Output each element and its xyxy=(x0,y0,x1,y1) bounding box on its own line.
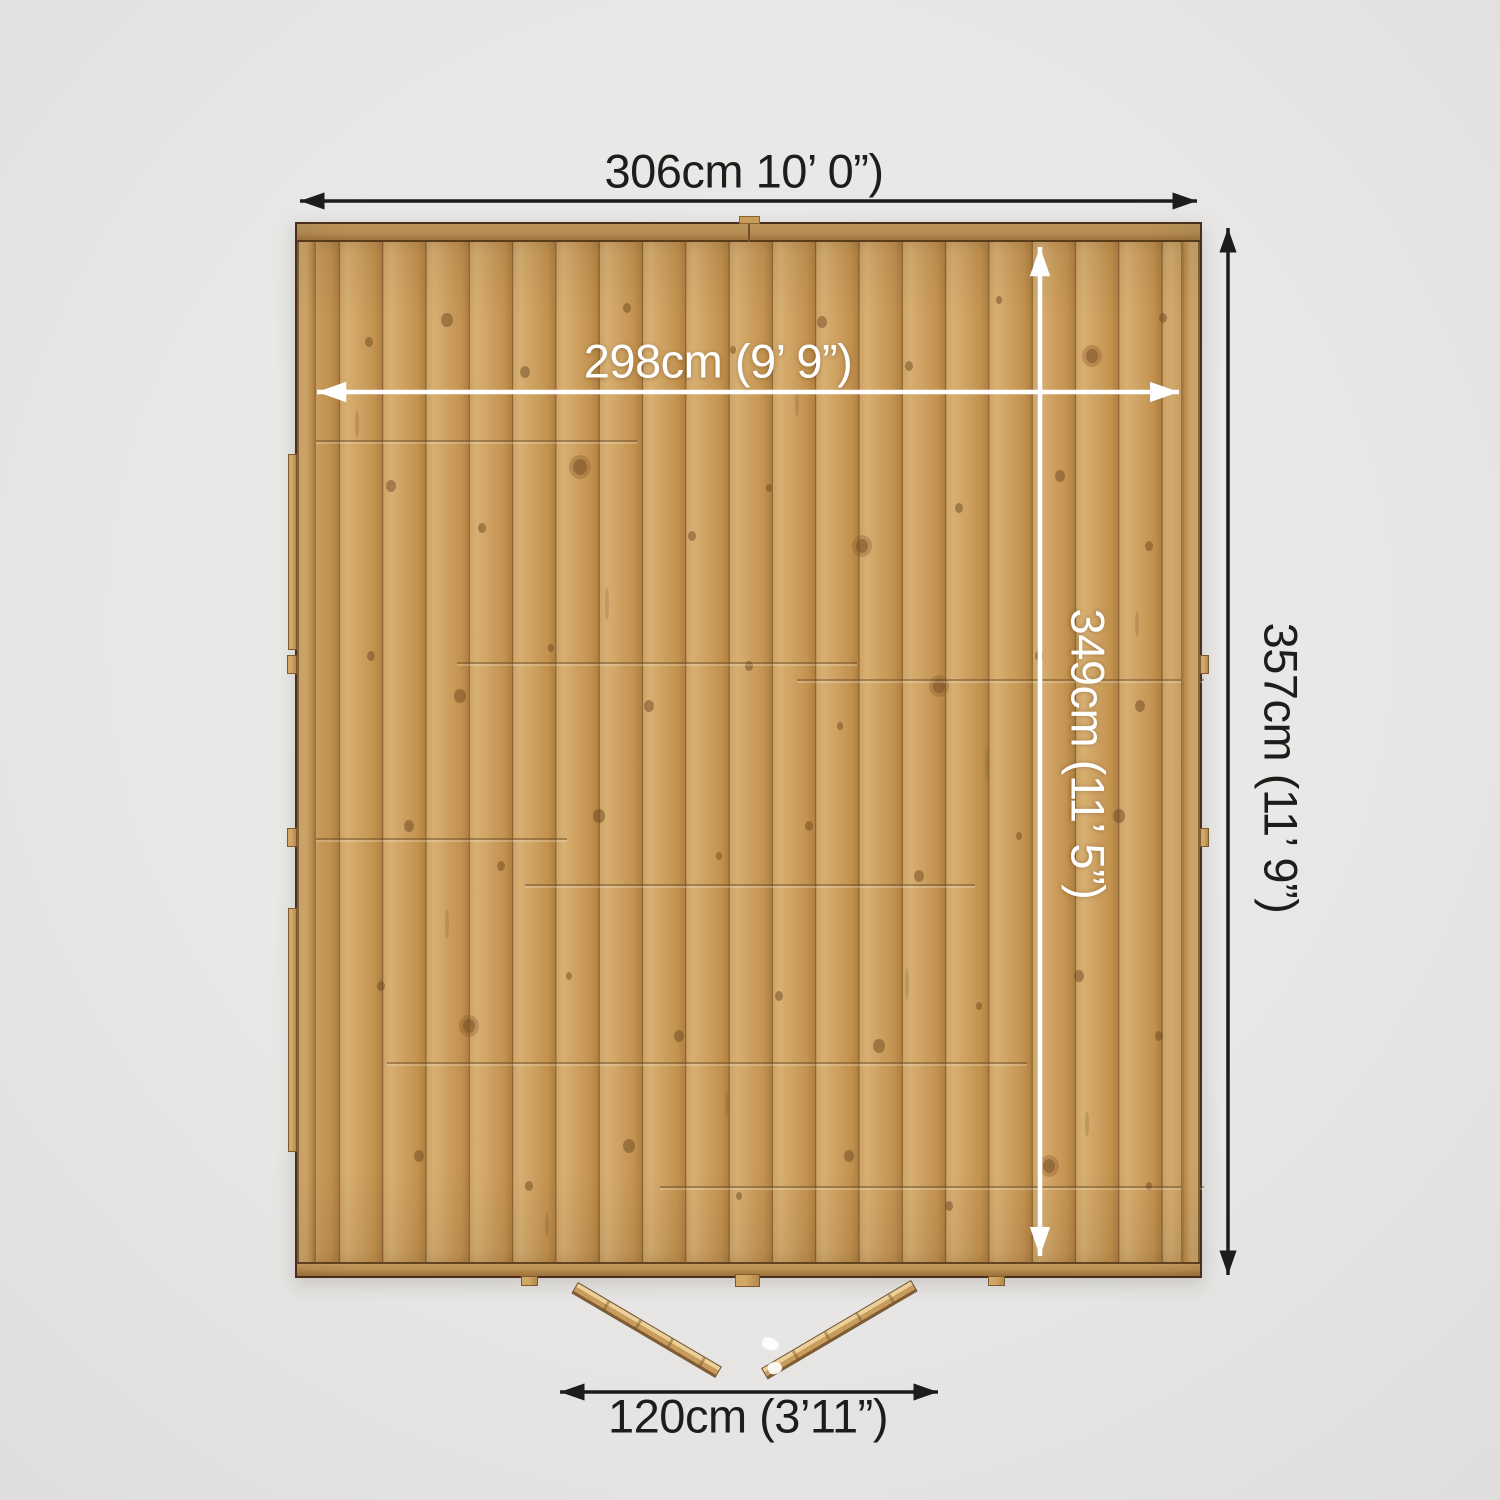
base-foot-right xyxy=(988,1276,1005,1286)
shed-top-view-diagram: 306cm 10’ 0”) 298cm (9’ 9”) 349cm (11’ 5… xyxy=(0,0,1500,1500)
base-foot-left xyxy=(521,1276,538,1286)
door-width-label: 120cm (3’11”) xyxy=(608,1389,888,1444)
inner-depth-label: 349cm (11’ 5”) xyxy=(1061,609,1116,900)
inner-width-label: 298cm (9’ 9”) xyxy=(584,334,853,389)
door-left-open xyxy=(571,1282,721,1378)
right-hinge-tab xyxy=(1200,828,1209,847)
right-hinge-tab xyxy=(1200,655,1209,674)
left-wall-lap-strip xyxy=(288,454,297,650)
left-wall-lap-strip xyxy=(288,908,297,1152)
outer-depth-label: 357cm (11’ 9”) xyxy=(1254,623,1309,914)
left-hinge-tab xyxy=(287,828,297,847)
door-jamb-center xyxy=(735,1274,760,1287)
door-handle-highlight xyxy=(761,1336,781,1353)
left-hinge-tab xyxy=(287,655,297,674)
roof-ridge-tab xyxy=(739,216,760,224)
outer-width-label: 306cm 10’ 0”) xyxy=(604,144,883,199)
door-right-open xyxy=(761,1280,918,1380)
